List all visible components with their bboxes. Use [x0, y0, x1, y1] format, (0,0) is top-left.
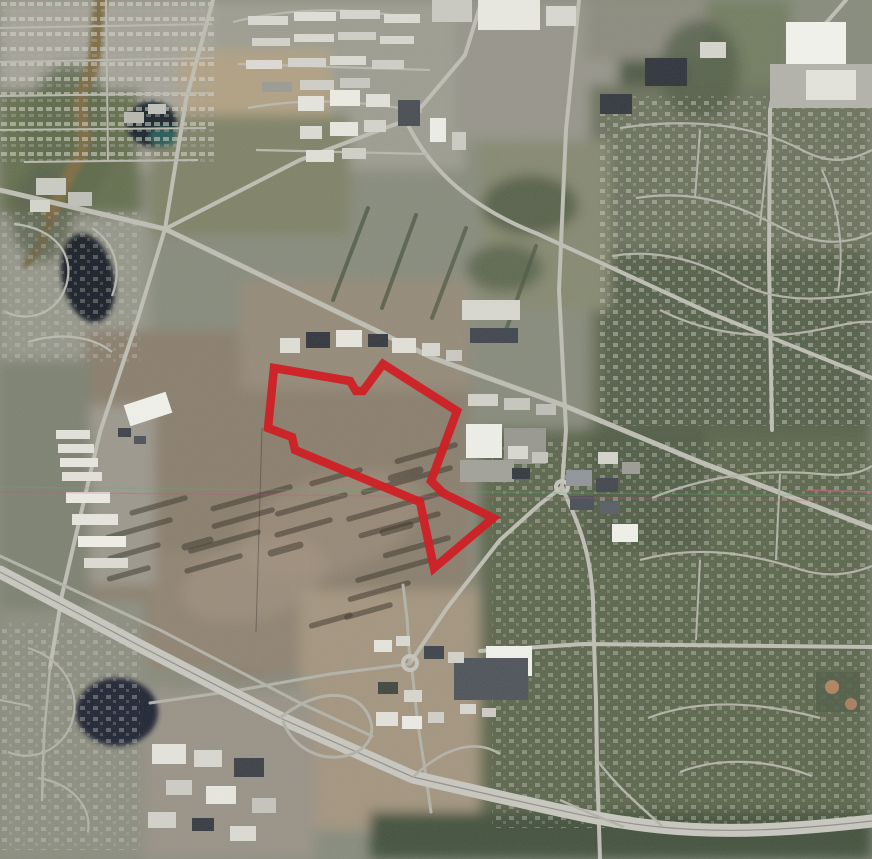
film-grain — [0, 0, 872, 859]
aerial-map-svg — [0, 0, 872, 859]
aerial-photo — [0, 0, 872, 859]
